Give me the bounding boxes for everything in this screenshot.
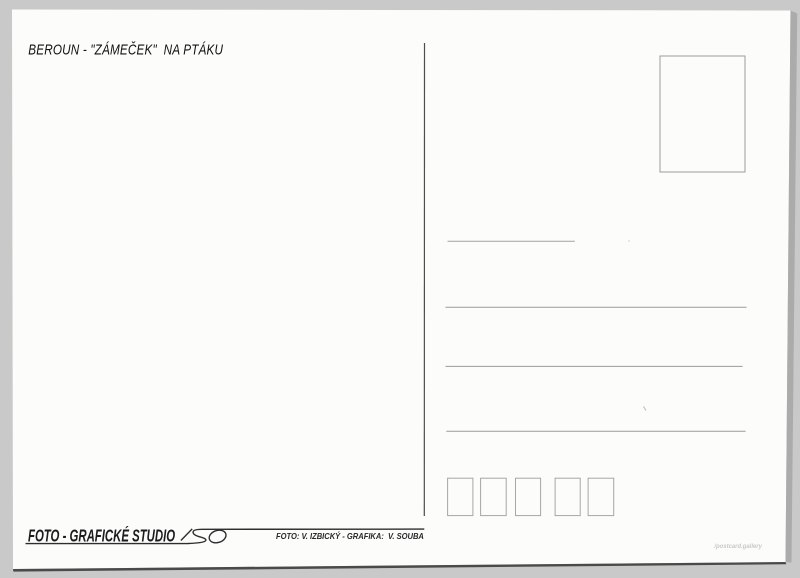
svg-text:BEROUN - "ZÁMEČEK" NA PTÁKU: BEROUN - "ZÁMEČEK" NA PTÁKU	[28, 41, 223, 58]
svg-text:/postcard.gallery: /postcard.gallery	[713, 544, 762, 550]
svg-text:FOTO - GRAFICKÉ STUDIO: FOTO - GRAFICKÉ STUDIO	[28, 526, 175, 546]
svg-text:FOTO: V. IZBICKÝ - GRAFIKA: V: FOTO: V. IZBICKÝ - GRAFIKA: V. SOUBA	[276, 532, 424, 541]
